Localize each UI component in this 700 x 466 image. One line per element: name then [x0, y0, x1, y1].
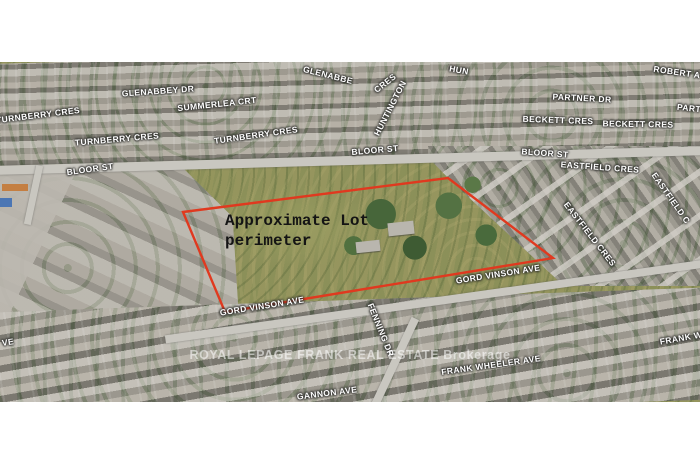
street-label-beckett-cres-e: BECKETT CRES	[602, 118, 673, 129]
aerial-map-image[interactable]: GLENABBEY DR SUMMERLEA CRT TURNBERRY CRE…	[0, 62, 700, 402]
plaza-storefront	[2, 184, 28, 191]
annotation-line1: Approximate Lot	[225, 212, 369, 230]
farm-house-roof	[387, 221, 414, 237]
street-label-ave-partial: VE	[1, 336, 14, 348]
annotation-line2: perimeter	[225, 232, 311, 250]
lot-perimeter-annotation: Approximate Lotperimeter	[225, 211, 369, 251]
listing-photo-page: GLENABBEY DR SUMMERLEA CRT TURNBERRY CRE…	[0, 0, 700, 466]
brokerage-watermark: ROYAL LEPAGE FRANK REAL ESTATE Brokerage	[189, 348, 510, 362]
plaza-sign	[0, 198, 12, 207]
